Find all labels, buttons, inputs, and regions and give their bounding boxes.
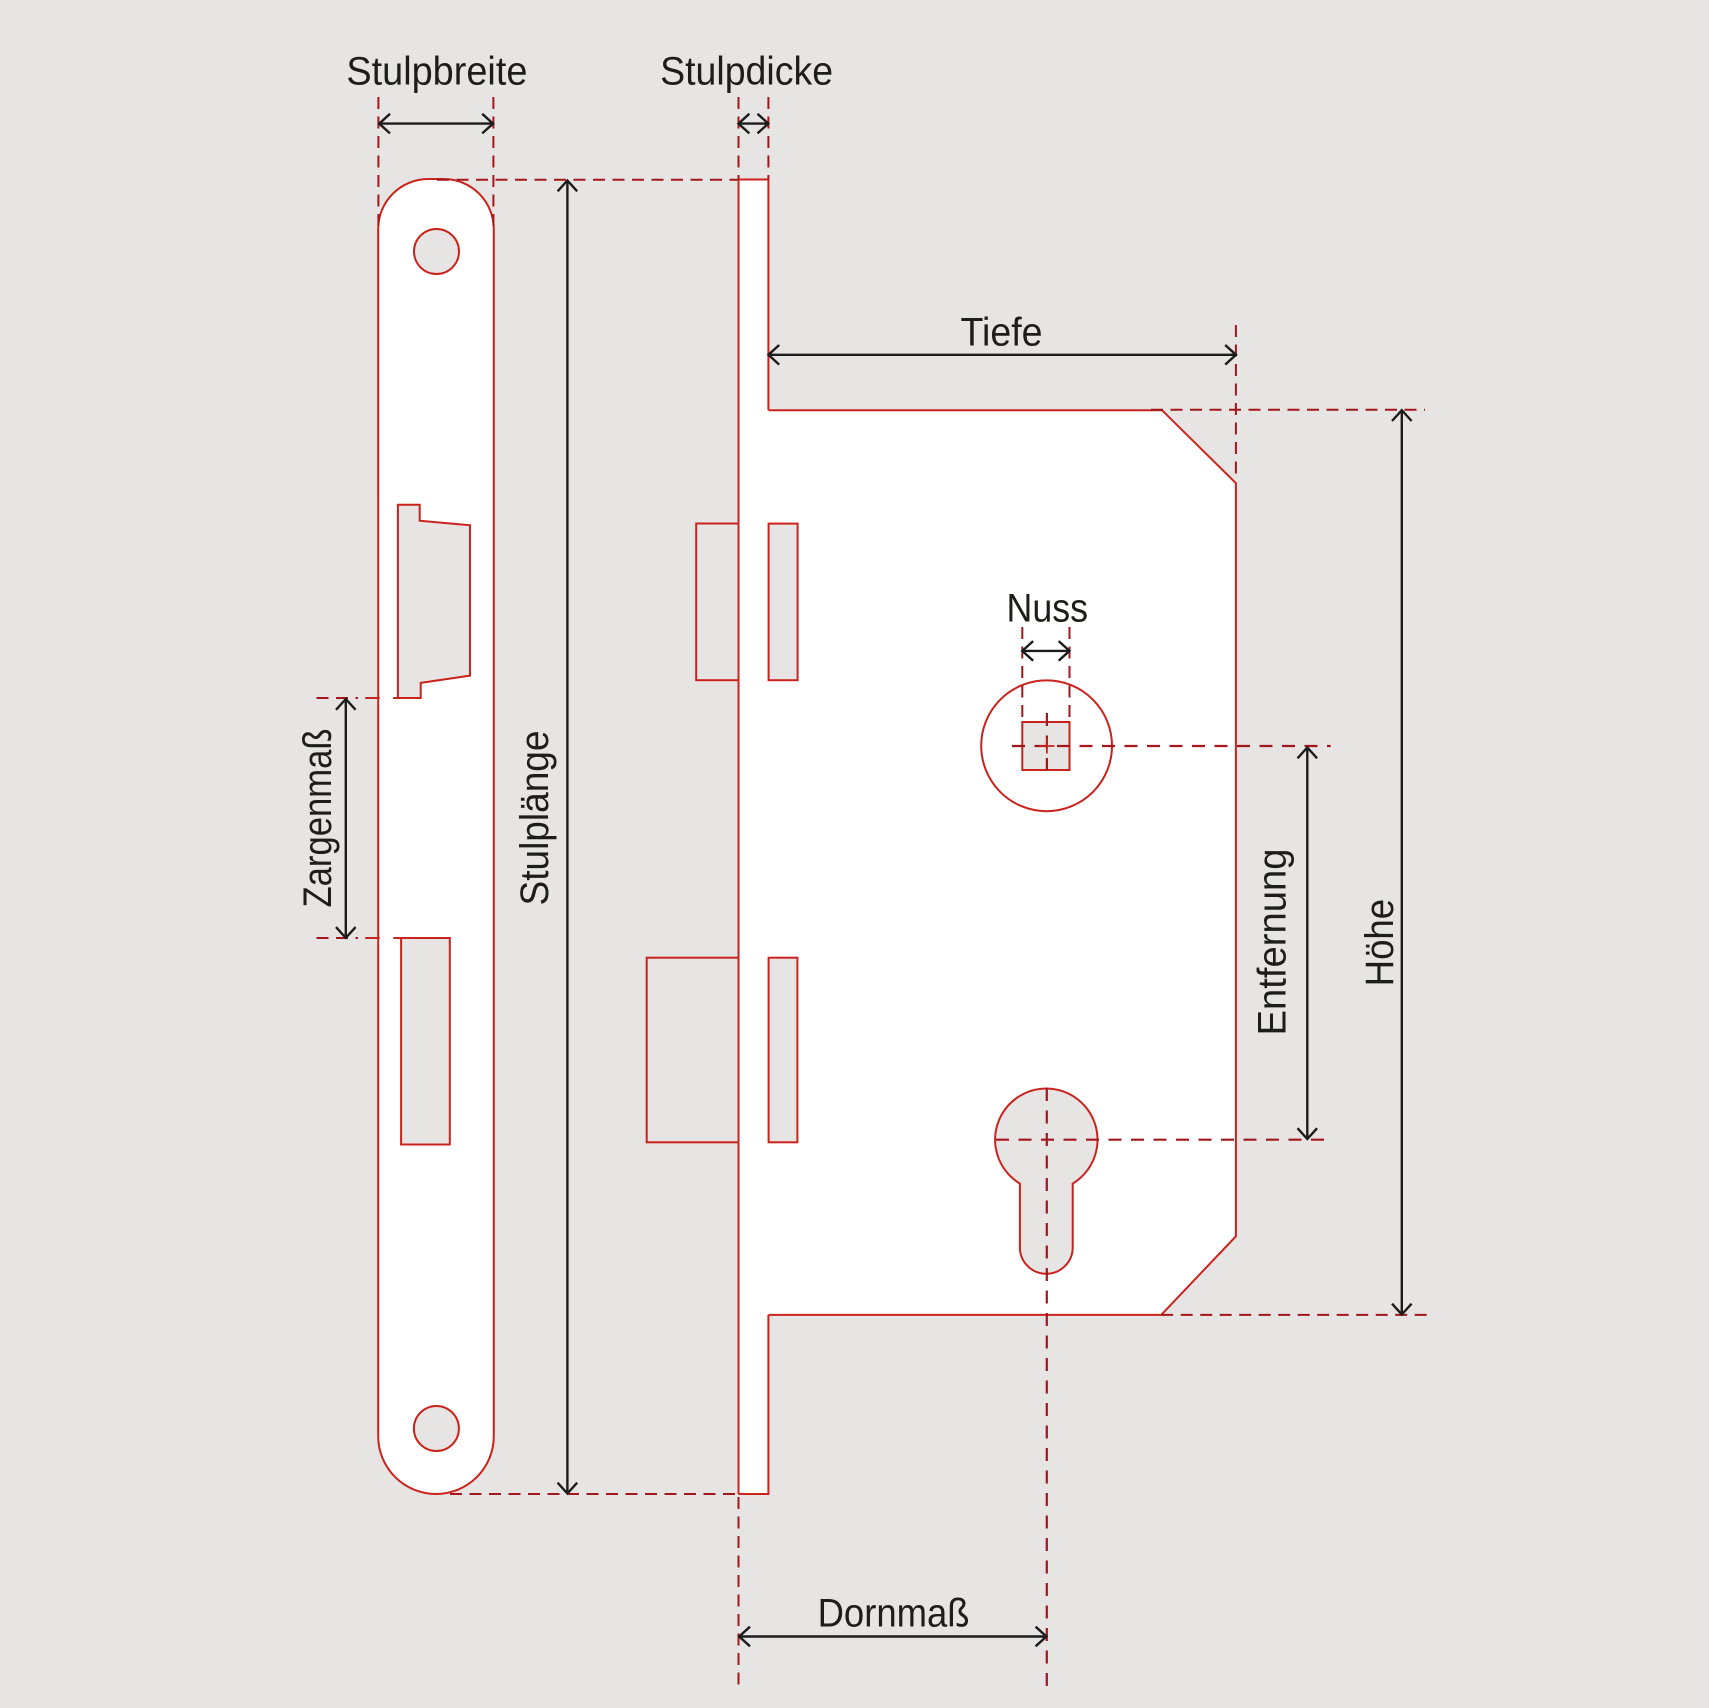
svg-text:Stulpbreite: Stulpbreite [346,50,527,94]
svg-text:Dornmaß: Dornmaß [818,1592,970,1636]
svg-text:Tiefe: Tiefe [961,311,1043,355]
svg-text:Höhe: Höhe [1358,899,1402,987]
svg-text:Stulpdicke: Stulpdicke [660,50,833,94]
svg-text:Entfernung: Entfernung [1251,849,1295,1036]
svg-text:Zargenmaß: Zargenmaß [296,729,340,908]
svg-text:Nuss: Nuss [1007,587,1089,631]
svg-text:Stulplänge: Stulplänge [513,731,557,906]
